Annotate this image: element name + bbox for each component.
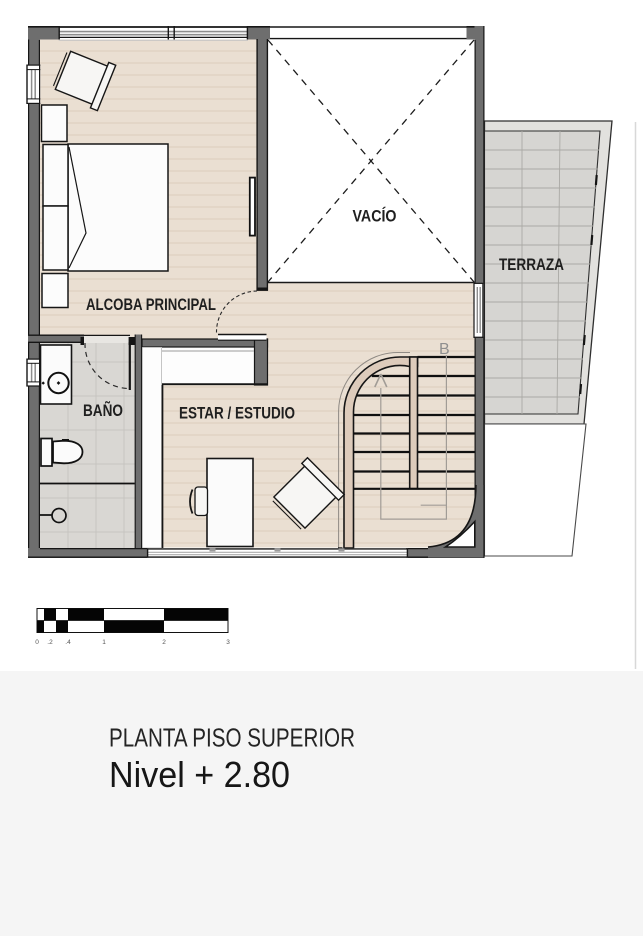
svg-text:2: 2	[162, 639, 166, 646]
svg-text:ESTAR / ESTUDIO: ESTAR / ESTUDIO	[179, 404, 295, 423]
svg-text:ALCOBA PRINCIPAL: ALCOBA PRINCIPAL	[86, 295, 216, 314]
svg-text:BAÑO: BAÑO	[83, 400, 123, 420]
svg-text:3: 3	[226, 639, 230, 646]
svg-text:.4: .4	[65, 639, 71, 646]
svg-text:0: 0	[35, 639, 39, 646]
svg-text:PLANTA PISO SUPERIOR: PLANTA PISO SUPERIOR	[109, 723, 355, 753]
svg-text:TERRAZA: TERRAZA	[499, 255, 564, 274]
svg-text:Nivel + 2.80: Nivel + 2.80	[109, 754, 290, 795]
svg-text:.2: .2	[47, 639, 53, 646]
svg-text:B: B	[439, 341, 450, 358]
svg-text:1: 1	[102, 639, 106, 646]
svg-text:VACÍO: VACÍO	[353, 207, 397, 226]
